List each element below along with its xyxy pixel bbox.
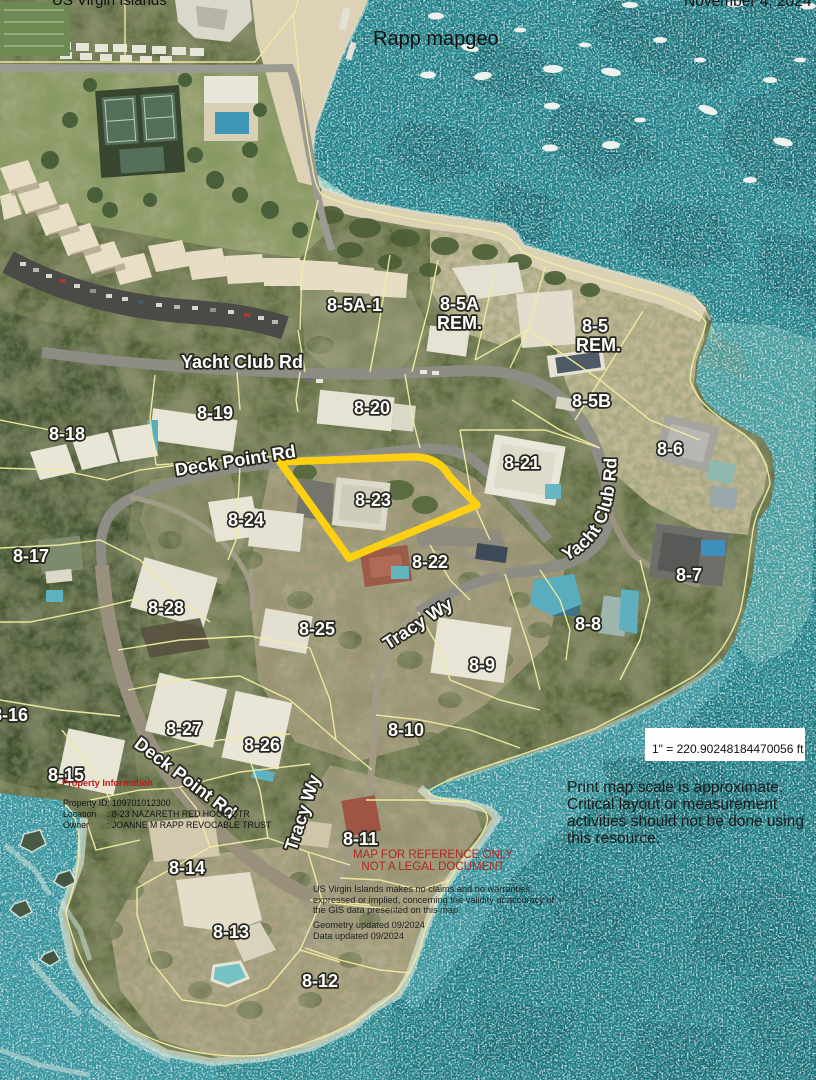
svg-text:8-24: 8-24 (228, 510, 264, 530)
svg-text:8-23: 8-23 (355, 490, 391, 510)
svg-text:Property Information: Property Information (62, 778, 153, 788)
svg-text:1" = 220.90248184470056 ft: 1" = 220.90248184470056 ft (652, 742, 804, 756)
svg-text:8-13: 8-13 (213, 922, 249, 942)
svg-text:8-21: 8-21 (504, 453, 540, 473)
svg-text:8-11: 8-11 (343, 829, 378, 849)
svg-text:8-16: 8-16 (0, 705, 28, 725)
svg-text:Data updated 09/2024: Data updated 09/2024 (313, 931, 404, 941)
svg-text:Geometry updated 09/2024: Geometry updated 09/2024 (313, 920, 425, 930)
svg-text:Property ID: Property ID (63, 798, 108, 808)
svg-text:8-27: 8-27 (166, 719, 202, 739)
svg-text:Location: Location (63, 809, 96, 819)
svg-text:NOT A LEGAL DOCUMENT: NOT A LEGAL DOCUMENT (361, 861, 504, 873)
svg-text:November 4, 2024: November 4, 2024 (684, 0, 812, 10)
svg-text:8-8: 8-8 (575, 614, 601, 634)
svg-text:expressed or implied, concerni: expressed or implied, concerning the val… (313, 895, 554, 905)
svg-text:Rapp mapgeo: Rapp mapgeo (373, 28, 499, 50)
svg-text:8-5A-1: 8-5A-1 (327, 295, 382, 315)
svg-text:MAP FOR REFERENCE ONLY: MAP FOR REFERENCE ONLY (353, 849, 513, 861)
svg-text:: JOANNE M RAPP REVOCABLE TRU: : JOANNE M RAPP REVOCABLE TRUST (107, 820, 272, 830)
svg-text:8-9: 8-9 (469, 655, 495, 675)
svg-text:this resource.: this resource. (567, 830, 660, 847)
svg-text:US Virgin Islands makes no cla: US Virgin Islands makes no claims and no… (313, 884, 532, 894)
svg-text:8-26: 8-26 (244, 735, 280, 755)
svg-text:REM.: REM. (437, 313, 482, 333)
svg-text:US Virgin Islands: US Virgin Islands (52, 0, 167, 9)
svg-text:: 109701012300: : 109701012300 (107, 798, 171, 808)
svg-text:Owner: Owner (63, 820, 89, 830)
svg-text:8-5B: 8-5B (572, 391, 611, 411)
svg-text:8-25: 8-25 (299, 619, 335, 639)
svg-text:8-18: 8-18 (49, 424, 85, 444)
svg-text:Yacht Club Rd: Yacht Club Rd (181, 352, 303, 372)
svg-text:8-12: 8-12 (302, 971, 338, 991)
svg-text:REM.: REM. (576, 335, 621, 355)
svg-text:Critical layout or measurement: Critical layout or measurement (567, 796, 778, 813)
svg-text:8-10: 8-10 (388, 720, 424, 740)
svg-text:8-19: 8-19 (197, 403, 233, 423)
svg-text:8-5A: 8-5A (440, 294, 479, 314)
svg-text:the GIS data presented on this: the GIS data presented on this map. (313, 905, 461, 915)
svg-text:8-6: 8-6 (657, 439, 683, 459)
svg-text:8-17: 8-17 (13, 546, 49, 566)
svg-text:activities should not be done: activities should not be done using (567, 813, 804, 830)
svg-text:8-28: 8-28 (148, 598, 184, 618)
svg-text:8-14: 8-14 (169, 858, 205, 878)
svg-text:: 8-23 NAZARETH RED HOOK QTR: : 8-23 NAZARETH RED HOOK QTR (107, 809, 250, 819)
svg-text:8-20: 8-20 (354, 398, 390, 418)
svg-text:Print map scale is approximate: Print map scale is approximate. (567, 779, 783, 796)
svg-text:8-5: 8-5 (582, 316, 608, 336)
svg-text:8-7: 8-7 (676, 565, 702, 585)
svg-text:8-22: 8-22 (412, 552, 448, 572)
